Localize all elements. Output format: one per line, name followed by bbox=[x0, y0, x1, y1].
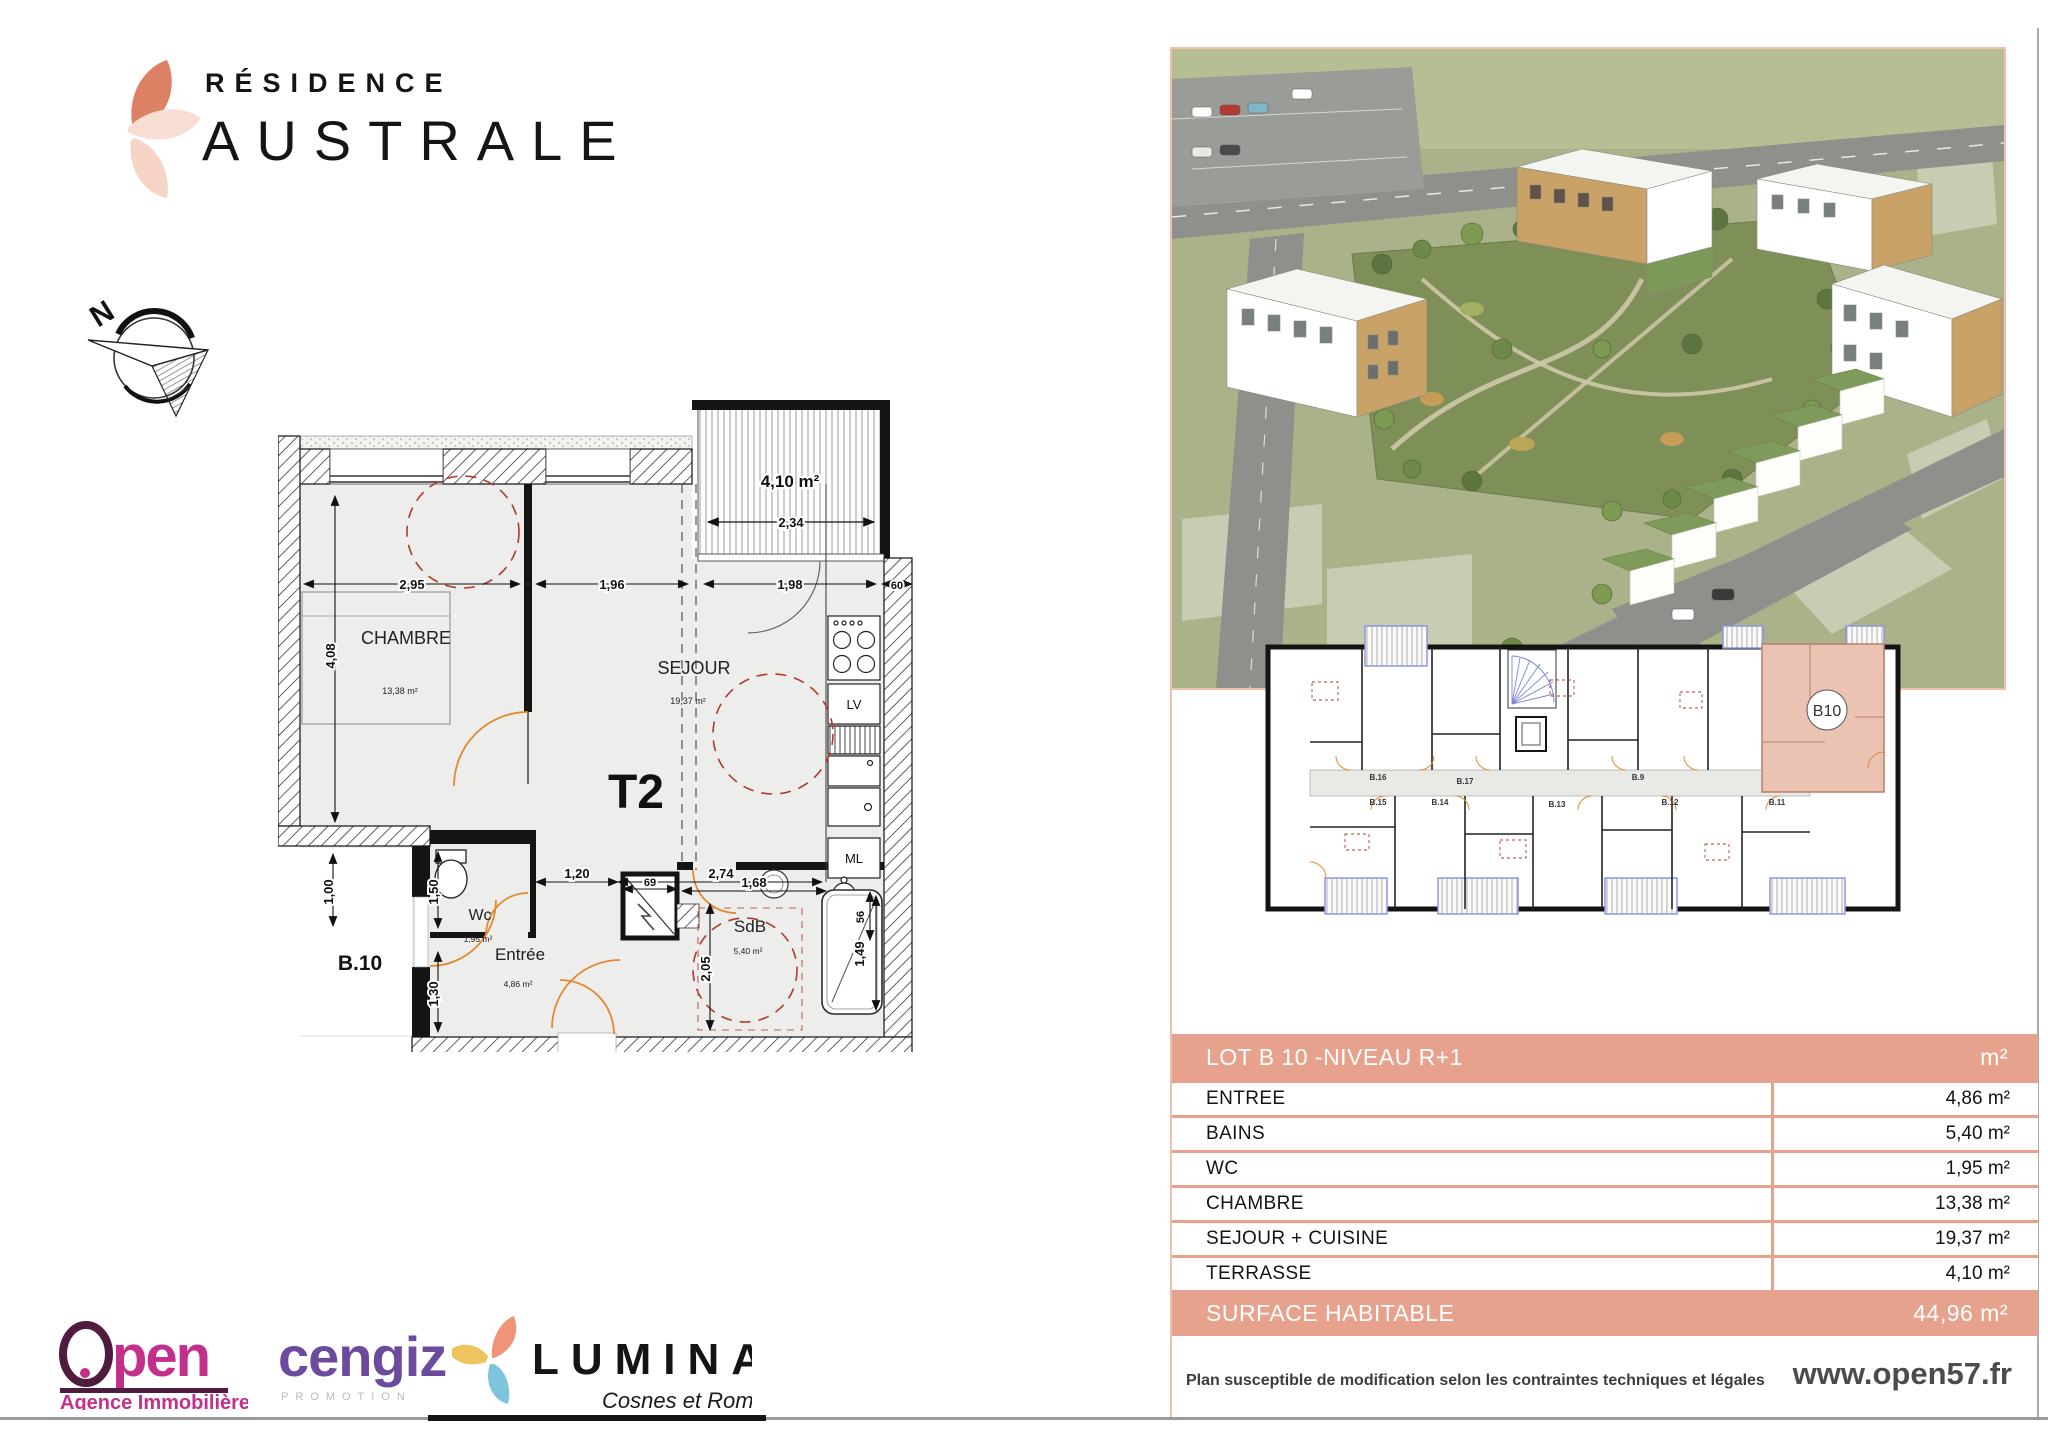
cengiz-tagline: PROMOTION bbox=[281, 1391, 412, 1403]
unit-label-b11: B.11 bbox=[1769, 798, 1786, 807]
open-tagline: Agence Immobilière bbox=[60, 1392, 248, 1410]
table-row: WC 1,95 m² bbox=[1172, 1150, 2038, 1185]
area-chambre: 13,38 m² bbox=[382, 686, 418, 696]
label-sdb: SdB bbox=[734, 917, 766, 936]
area-table-title: LOT B 10 -NIVEAU R+1 bbox=[1206, 1044, 1463, 1071]
washer-label: ML bbox=[845, 851, 863, 866]
dim-120: 1,20 bbox=[564, 866, 589, 881]
area-table: LOT B 10 -NIVEAU R+1 m² ENTREE 4,86 m² B… bbox=[1172, 1034, 2038, 1336]
row-value: 19,37 m² bbox=[1771, 1223, 2038, 1255]
unit-label-b14: B.14 bbox=[1432, 798, 1449, 807]
dim-196: 1,96 bbox=[599, 577, 624, 592]
dim-205: 2,05 bbox=[698, 956, 713, 981]
area-table-total: SURFACE HABITABLE 44,96 m² bbox=[1172, 1290, 2038, 1336]
area-sejour: 19,37 m² bbox=[670, 696, 706, 706]
petal-light-2 bbox=[130, 138, 167, 198]
lumina-petals-icon bbox=[452, 1316, 516, 1404]
page-bottom-rule bbox=[0, 1417, 2048, 1420]
dim-130: 1,30 bbox=[426, 981, 441, 1006]
dim-274: 2,74 bbox=[708, 866, 734, 881]
window-sejour bbox=[546, 449, 630, 484]
exterior-cut bbox=[292, 848, 412, 1035]
row-label: CHAMBRE bbox=[1172, 1188, 1771, 1220]
dim-56: 56 bbox=[855, 911, 867, 923]
row-value: 1,95 m² bbox=[1771, 1153, 2038, 1185]
dim-60: 60 bbox=[891, 580, 903, 592]
b10-badge: B10 bbox=[1813, 703, 1842, 720]
area-entree: 4,86 m² bbox=[504, 979, 533, 989]
unit-label-b17: B.17 bbox=[1457, 777, 1474, 786]
window-chambre bbox=[330, 449, 443, 484]
website-link[interactable]: www.open57.fr bbox=[1700, 1356, 2012, 1392]
flyer-page: RÉSIDENCE AUSTRALE N bbox=[0, 0, 2048, 1437]
brand-residence: RÉSIDENCE bbox=[205, 68, 453, 99]
terrace-area-label: 4,10 m² bbox=[761, 472, 820, 491]
dim-198: 1,98 bbox=[777, 577, 802, 592]
unit-label-b13: B.13 bbox=[1549, 800, 1566, 809]
row-label: TERRASSE bbox=[1172, 1258, 1771, 1290]
brand-logo-icon bbox=[55, 52, 205, 212]
dim-295: 2,95 bbox=[399, 577, 424, 592]
total-value: 44,96 m² bbox=[1913, 1300, 2008, 1327]
sink-icon bbox=[828, 756, 880, 826]
row-label: WC bbox=[1172, 1153, 1771, 1185]
lumina-wordmark: LUMINA bbox=[532, 1335, 752, 1384]
row-value: 13,38 m² bbox=[1771, 1188, 2038, 1220]
disclaimer-text: Plan susceptible de modification selon l… bbox=[1186, 1372, 1765, 1390]
label-lot: B.10 bbox=[338, 952, 382, 975]
terrace: 4,10 m² 2,34 bbox=[692, 400, 890, 561]
dim-149: 1,49 bbox=[852, 941, 867, 966]
lumina-tagline: Cosnes et Romain bbox=[602, 1388, 752, 1413]
row-label: SEJOUR + CUISINE bbox=[1172, 1223, 1771, 1255]
label-wc: Wc bbox=[468, 907, 491, 924]
unit-b10-highlight: B10 bbox=[1762, 644, 1884, 792]
apartment-floor-plan: 4,10 m² 2,34 bbox=[278, 392, 918, 1052]
area-table-unit: m² bbox=[1980, 1044, 2008, 1071]
compass-icon: N bbox=[70, 288, 220, 420]
label-entree: Entrée bbox=[495, 945, 545, 964]
row-value: 4,86 m² bbox=[1771, 1083, 2038, 1115]
area-table-header: LOT B 10 -NIVEAU R+1 m² bbox=[1172, 1034, 2038, 1080]
dishwasher-label: LV bbox=[847, 697, 862, 712]
label-sejour: SEJOUR bbox=[657, 658, 730, 678]
open-logo: pen Agence Immobilière bbox=[58, 1318, 248, 1410]
label-type: T2 bbox=[608, 766, 664, 819]
open-wordmark: pen bbox=[112, 1324, 209, 1389]
unit-label-b15: B.15 bbox=[1370, 798, 1387, 807]
dim-150: 1,50 bbox=[426, 879, 441, 904]
table-row: CHAMBRE 13,38 m² bbox=[1172, 1185, 2038, 1220]
row-value: 4,10 m² bbox=[1771, 1258, 2038, 1290]
table-row: SEJOUR + CUISINE 19,37 m² bbox=[1172, 1220, 2038, 1255]
site-render bbox=[1172, 49, 2004, 688]
dim-408: 4,08 bbox=[323, 643, 338, 668]
row-value: 5,40 m² bbox=[1771, 1118, 2038, 1150]
row-label: ENTREE bbox=[1172, 1083, 1771, 1115]
row-label: BAINS bbox=[1172, 1118, 1771, 1150]
area-sdb: 5,40 m² bbox=[734, 946, 763, 956]
unit-label-b16: B.16 bbox=[1370, 773, 1387, 782]
area-wc: 1,95 m² bbox=[464, 934, 493, 944]
unit-label-b9: B.9 bbox=[1632, 773, 1645, 782]
site-render-frame bbox=[1170, 47, 2006, 690]
table-row: TERRASSE 4,10 m² bbox=[1172, 1255, 2038, 1290]
table-row: BAINS 5,40 m² bbox=[1172, 1115, 2038, 1150]
dim-terrace-width: 2,34 bbox=[778, 515, 804, 530]
cooktop-icon bbox=[828, 616, 880, 680]
compass-north-label: N bbox=[84, 294, 120, 333]
building-level-plan: B10 bbox=[1250, 622, 1930, 942]
elevator-icon bbox=[1516, 717, 1546, 751]
brand-title: AUSTRALE bbox=[202, 108, 634, 173]
dim-69: 69 bbox=[644, 877, 656, 889]
dim-168: 1,68 bbox=[741, 875, 766, 890]
drainer-icon bbox=[828, 726, 880, 754]
cengiz-logo: cengiz PROMOTION bbox=[278, 1326, 448, 1406]
table-row: ENTREE 4,86 m² bbox=[1172, 1080, 2038, 1115]
label-chambre: CHAMBRE bbox=[361, 628, 451, 648]
page-bottom-rule-dark bbox=[428, 1415, 766, 1421]
unit-label-b12: B.12 bbox=[1662, 798, 1679, 807]
dim-100: 1,00 bbox=[321, 879, 336, 904]
lumina-logo: LUMINA Cosnes et Romain bbox=[452, 1312, 752, 1420]
cengiz-wordmark: cengiz bbox=[278, 1326, 446, 1388]
total-label: SURFACE HABITABLE bbox=[1206, 1300, 1454, 1327]
